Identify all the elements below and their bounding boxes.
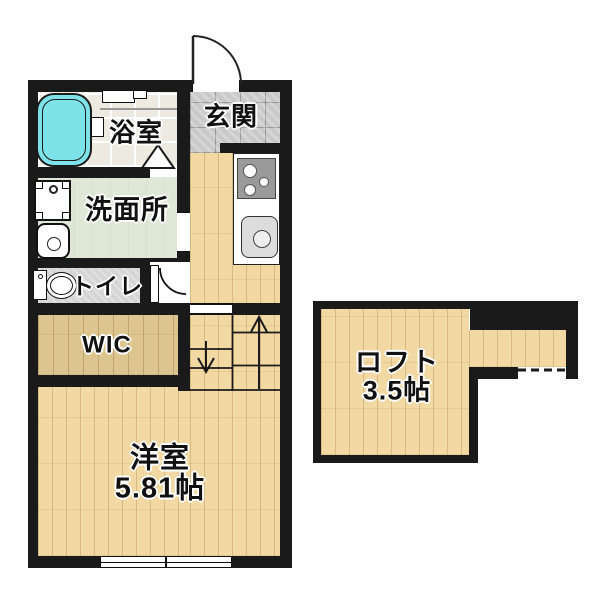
wall [28,167,150,178]
wall [232,303,292,315]
washer-faucet [49,185,58,194]
bath-shelf [102,90,135,103]
washroom-label: 洗面所 [85,196,169,224]
burner [244,184,256,196]
toilet-bowl-inner [50,276,73,295]
wic-label: WIC [82,332,132,357]
loft-wall [313,301,321,463]
bath-shelf [133,90,147,99]
burner [243,164,257,178]
bath-counter-line [100,108,177,110]
bath-stool [91,117,104,137]
loft-name: ロフト [355,349,439,377]
kitchen-counter [233,153,280,265]
loft-size: 3.5帖 [355,377,439,405]
washroom-door-opening [177,212,190,252]
toilet-icon [33,270,47,300]
bathroom-label: 浴室 [109,119,163,146]
loft-arm-floor [469,330,566,367]
sink-drain [253,230,271,248]
washer-corner [62,181,70,189]
entrance-door-arc [193,36,241,84]
toilet-label: トイレ [71,274,143,298]
western-room-size: 5.81帖 [115,474,205,504]
loft-label: ロフト 3.5帖 [355,349,439,406]
floorplan: 玄関 浴室 洗面所 トイレ WIC 洋室 5.81帖 ロフト 3.5帖 [0,0,600,600]
bathtub-inner [42,99,86,161]
wall [220,143,292,153]
wall [177,80,190,212]
loft-wall [313,455,478,463]
flush-knob [38,274,43,279]
basin-drain [47,237,61,251]
loft-wall [313,301,470,309]
window [100,556,232,568]
washer-corner [35,212,43,220]
loft-wall [469,367,478,463]
wall [280,80,292,568]
window-center-tick [165,557,167,567]
wall [28,303,150,315]
loft-wall [470,301,578,330]
washbasin-icon [36,223,70,259]
burner [259,177,269,187]
hall-opening [190,303,232,315]
washer-corner [35,181,43,189]
washer-corner [62,212,70,220]
bathtub-icon [36,93,92,167]
western-room-name: 洋室 [115,444,205,474]
western-room-label: 洋室 5.81帖 [115,444,205,505]
loft-wall [566,301,578,379]
genkan-label: 玄関 [204,103,258,130]
wall [177,252,190,262]
entrance-door-opening [192,80,240,92]
kitchen-sink-icon [241,216,278,258]
washing-machine-icon [34,180,71,221]
stove-icon [237,158,276,199]
wall [28,375,190,387]
toilet-door-leaf [150,265,159,303]
